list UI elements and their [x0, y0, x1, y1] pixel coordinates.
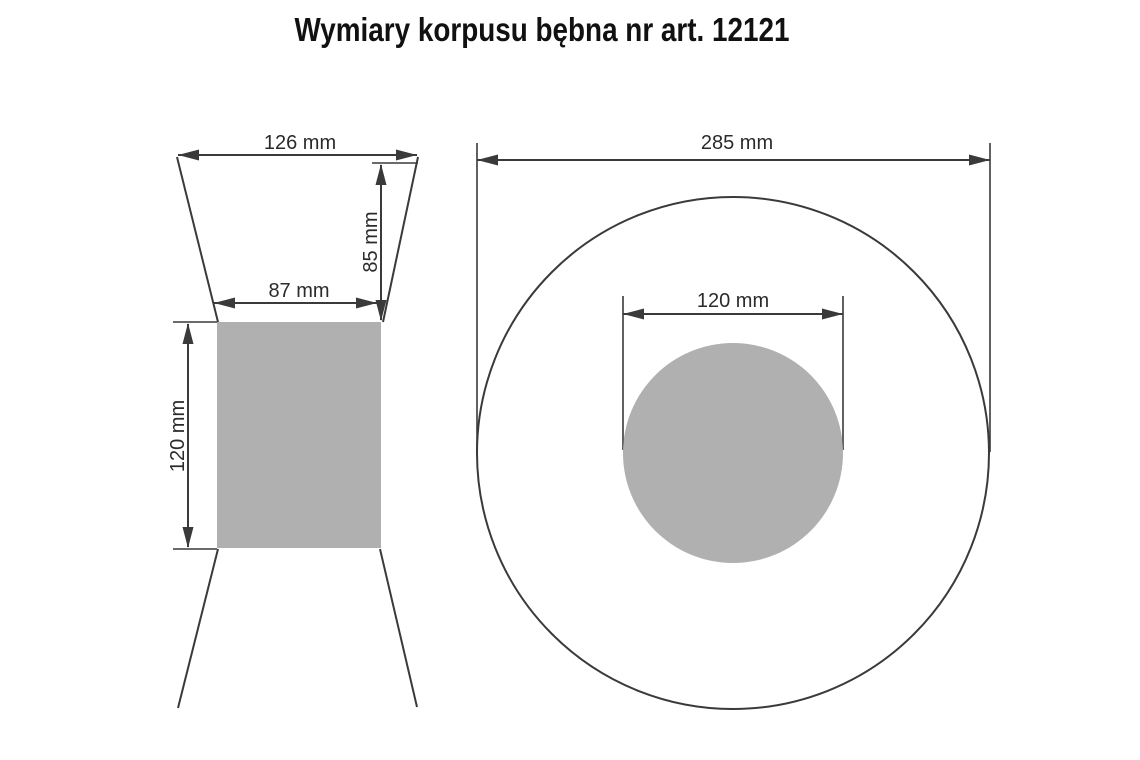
arrowhead-right-icon: [396, 150, 417, 161]
arrowhead-down-icon: [183, 527, 194, 548]
drum-core-circle: [623, 343, 843, 563]
dim-label-core-height: 120 mm: [167, 400, 189, 472]
dim-label-core-diameter: 120 mm: [697, 290, 769, 312]
drawing-page: Wymiary korpusu bębna nr art. 12121 126 …: [0, 0, 1140, 760]
dim-label-flange-height: 85 mm: [360, 211, 382, 272]
front-view: 285 mm 120 mm: [477, 132, 990, 709]
drum-core-rect: [217, 322, 381, 548]
dim-label-flange-outer-width: 126 mm: [264, 132, 336, 154]
flange-bottom-right-edge: [380, 549, 417, 707]
technical-drawing: Wymiary korpusu bębna nr art. 12121 126 …: [0, 0, 1140, 760]
flange-bottom-left-edge: [178, 549, 218, 708]
dim-label-outer-diameter: 285 mm: [701, 132, 773, 154]
arrowhead-left-icon: [623, 309, 644, 320]
arrowhead-right-icon: [969, 155, 990, 166]
arrowhead-right-icon: [356, 298, 377, 309]
arrowhead-up-icon: [183, 323, 194, 344]
side-view: 126 mm 85 mm 87 mm 120 mm: [167, 132, 418, 708]
page-title: Wymiary korpusu bębna nr art. 12121: [295, 11, 790, 48]
flange-top-right-edge: [383, 157, 418, 322]
dim-label-core-width: 87 mm: [268, 280, 329, 302]
arrowhead-right-icon: [822, 309, 843, 320]
arrowhead-up-icon: [376, 164, 387, 185]
arrowhead-left-icon: [477, 155, 498, 166]
flange-top-left-edge: [177, 157, 218, 322]
arrowhead-left-icon: [214, 298, 235, 309]
arrowhead-left-icon: [178, 150, 199, 161]
